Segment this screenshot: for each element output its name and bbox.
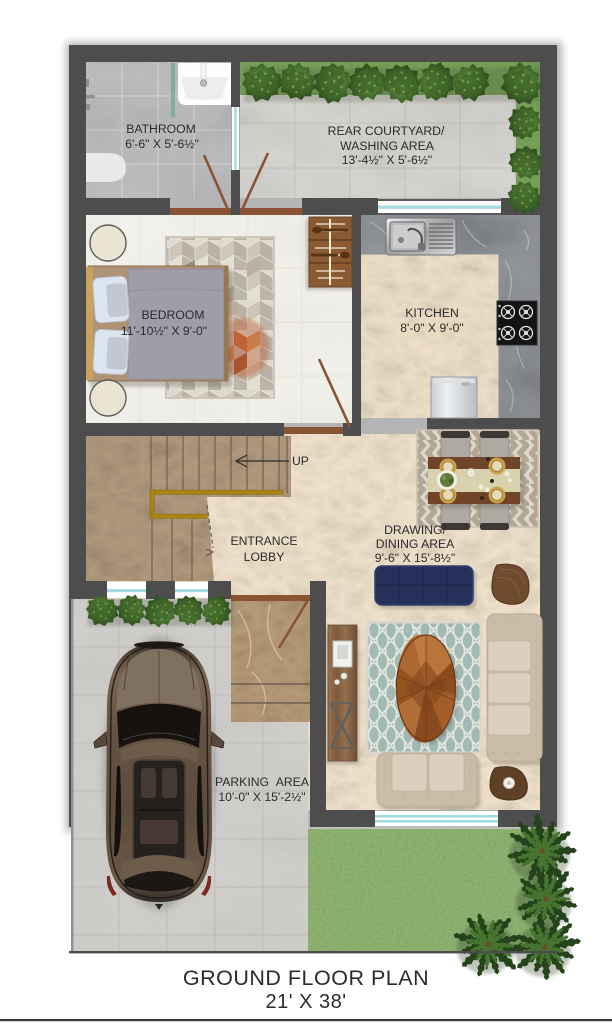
svg-text:GROUND FLOOR PLAN: GROUND FLOOR PLAN: [183, 966, 429, 990]
svg-text:6'-6" X 5'-6½": 6'-6" X 5'-6½": [125, 137, 199, 151]
svg-text:REAR COURTYARD/: REAR COURTYARD/: [328, 124, 445, 138]
svg-text:21' X 38': 21' X 38': [265, 991, 346, 1013]
svg-text:DINING AREA: DINING AREA: [376, 537, 455, 551]
svg-text:LOBBY: LOBBY: [244, 550, 285, 564]
svg-text:BATHROOM: BATHROOM: [126, 122, 196, 136]
svg-text:UP: UP: [292, 454, 309, 468]
svg-text:DRAWING/: DRAWING/: [384, 523, 446, 537]
svg-text:9'-6" X 15'-8½": 9'-6" X 15'-8½": [375, 551, 455, 565]
svg-text:KITCHEN: KITCHEN: [405, 306, 459, 320]
svg-text:11'-10½" X 9'-0": 11'-10½" X 9'-0": [121, 324, 207, 338]
svg-text:PARKING AREA: PARKING AREA: [215, 775, 310, 789]
svg-text:13'-4½" X 5'-6½": 13'-4½" X 5'-6½": [342, 153, 433, 167]
svg-text:WASHING AREA: WASHING AREA: [340, 139, 435, 153]
svg-text:10'-0" X 15'-2½": 10'-0" X 15'-2½": [218, 790, 305, 804]
svg-text:BEDROOM: BEDROOM: [142, 308, 205, 322]
svg-text:8'-0" X 9'-0": 8'-0" X 9'-0": [400, 321, 463, 335]
svg-text:ENTRANCE: ENTRANCE: [230, 534, 297, 548]
